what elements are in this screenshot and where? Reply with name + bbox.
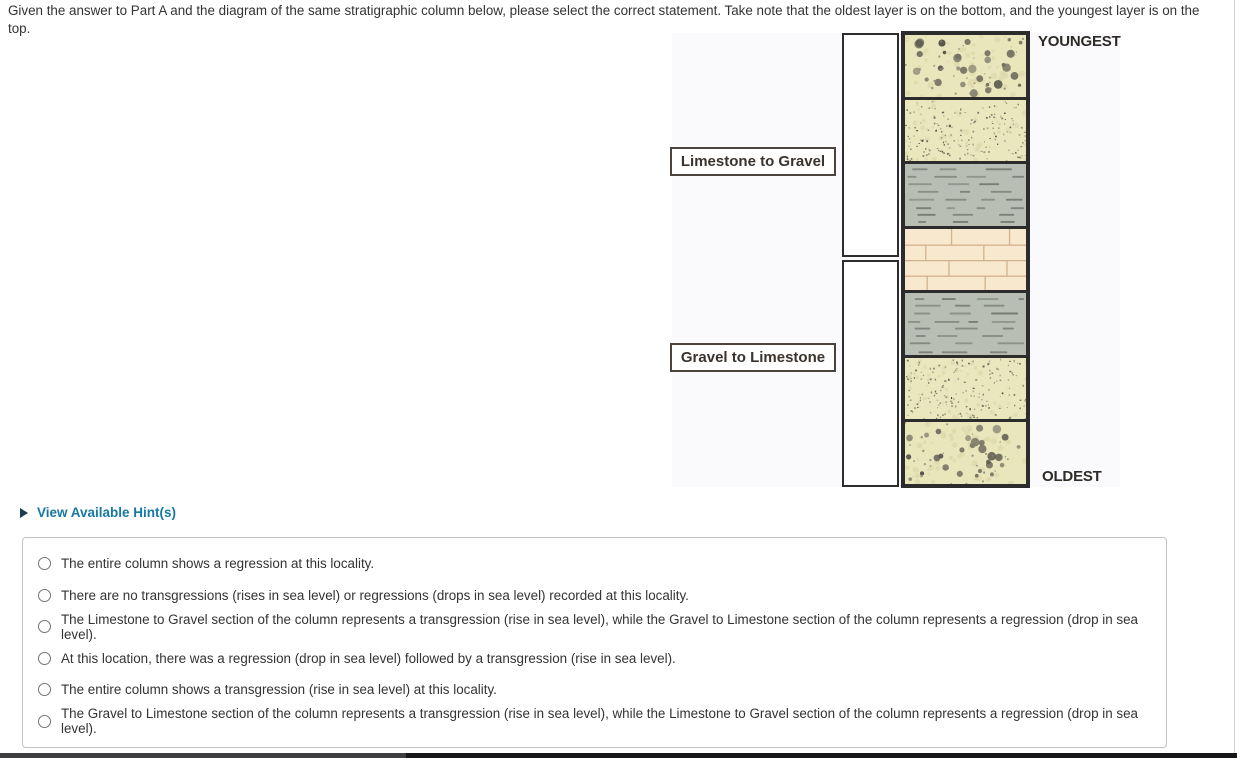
section-label-text: Gravel to Limestone — [681, 349, 825, 366]
right-edge-divider — [1234, 0, 1235, 753]
option-label: The entire column shows a regression at … — [61, 556, 374, 571]
section-label-text: Limestone to Gravel — [681, 153, 825, 170]
radio-button[interactable] — [38, 589, 51, 602]
strat-layer-sandstone — [905, 97, 1026, 162]
answer-option[interactable]: At this location, there was a regression… — [23, 643, 1166, 675]
right-triangle-icon — [20, 508, 28, 518]
oldest-label: OLDEST — [1042, 468, 1102, 485]
radio-button[interactable] — [38, 557, 51, 570]
option-label: There are no transgressions (rises in se… — [61, 588, 689, 603]
view-hints-label: View Available Hint(s) — [37, 505, 176, 520]
option-label: The Limestone to Gravel section of the c… — [61, 612, 1166, 642]
strat-layer-shale — [905, 161, 1026, 226]
answer-option[interactable]: There are no transgressions (rises in se… — [23, 580, 1166, 612]
answer-option[interactable]: The entire column shows a transgression … — [23, 674, 1166, 706]
answer-options-panel: The entire column shows a regression at … — [22, 537, 1167, 748]
answer-option[interactable]: The entire column shows a regression at … — [23, 548, 1166, 580]
bottom-bar-left-segment — [0, 753, 406, 758]
option-label: At this location, there was a regression… — [61, 651, 676, 666]
radio-button[interactable] — [38, 620, 51, 633]
radio-button[interactable] — [38, 715, 51, 728]
radio-button[interactable] — [38, 652, 51, 665]
option-label: The entire column shows a transgression … — [61, 682, 497, 697]
section-label-limestone-to-gravel: Limestone to Gravel — [670, 147, 836, 176]
bracket-lower-section — [842, 260, 899, 487]
bracket-upper-section — [842, 33, 899, 257]
section-label-gravel-to-limestone: Gravel to Limestone — [670, 343, 836, 372]
strat-layer-sandstone — [905, 355, 1026, 420]
strat-layer-shale — [905, 290, 1026, 355]
stratigraphic-column — [901, 31, 1030, 488]
strat-layer-conglomerate-top — [905, 35, 1026, 97]
strat-layer-limestone — [905, 226, 1026, 291]
option-label: The Gravel to Limestone section of the c… — [61, 706, 1166, 736]
view-hints-link[interactable]: View Available Hint(s) — [20, 505, 176, 520]
answer-option[interactable]: The Gravel to Limestone section of the c… — [23, 706, 1166, 738]
bottom-bar-right-segment — [406, 753, 1237, 758]
page: Given the answer to Part A and the diagr… — [0, 0, 1237, 758]
radio-button[interactable] — [38, 683, 51, 696]
youngest-label: YOUNGEST — [1038, 33, 1121, 50]
strat-layer-conglomerate-bottom — [905, 419, 1026, 484]
answer-option[interactable]: The Limestone to Gravel section of the c… — [23, 611, 1166, 643]
